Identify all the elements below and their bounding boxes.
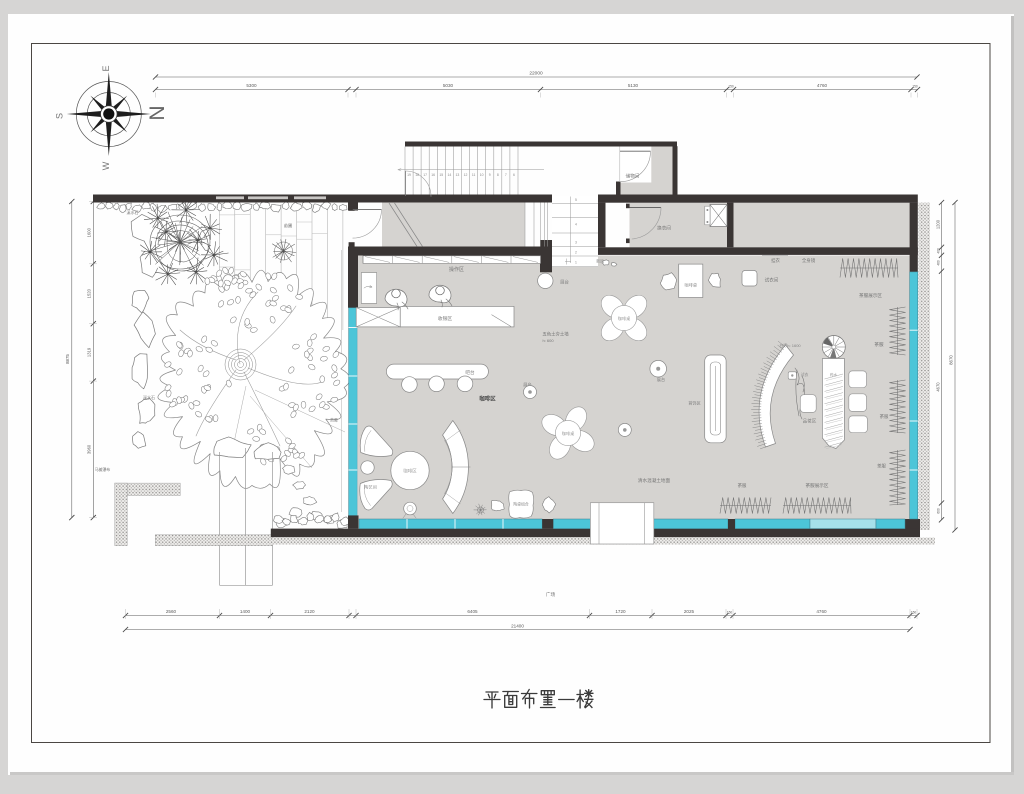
svg-text:22000: 22000 bbox=[529, 71, 543, 77]
svg-text:咖啡桌: 咖啡桌 bbox=[685, 281, 698, 288]
svg-text:h: 600: h: 600 bbox=[542, 338, 554, 343]
svg-text:操作区: 操作区 bbox=[449, 266, 464, 273]
svg-text:咖啡区: 咖啡区 bbox=[479, 395, 496, 403]
svg-text:400: 400 bbox=[936, 248, 940, 254]
svg-text:陶桌组合: 陶桌组合 bbox=[513, 502, 529, 507]
svg-text:21400: 21400 bbox=[511, 624, 524, 629]
svg-text:W: W bbox=[101, 161, 111, 170]
svg-text:广场: 广场 bbox=[546, 591, 556, 598]
svg-text:茶服展示区: 茶服展示区 bbox=[859, 292, 882, 299]
svg-text:150: 150 bbox=[911, 611, 917, 615]
svg-text:1720: 1720 bbox=[615, 609, 626, 614]
svg-text:12: 12 bbox=[464, 173, 468, 177]
svg-text:9: 9 bbox=[489, 173, 491, 177]
svg-text:2: 2 bbox=[575, 251, 577, 255]
svg-text:新风: 新风 bbox=[596, 259, 604, 264]
svg-text:13: 13 bbox=[456, 173, 460, 177]
svg-text:咖啡区: 咖啡区 bbox=[403, 468, 417, 475]
svg-text:5: 5 bbox=[575, 198, 577, 202]
svg-text:茶服: 茶服 bbox=[738, 482, 747, 489]
svg-text:首饰区: 首饰区 bbox=[688, 400, 701, 407]
svg-text:换衣间: 换衣间 bbox=[657, 225, 671, 232]
svg-text:1600: 1600 bbox=[87, 227, 92, 237]
svg-text:7: 7 bbox=[505, 173, 507, 177]
svg-text:4760: 4760 bbox=[817, 83, 828, 88]
svg-text:咖啡桌: 咖啡桌 bbox=[562, 430, 575, 437]
svg-text:3: 3 bbox=[575, 241, 577, 245]
svg-text:药水: 药水 bbox=[830, 372, 838, 377]
svg-text:8: 8 bbox=[497, 173, 499, 177]
svg-text:1200: 1200 bbox=[935, 219, 940, 229]
svg-text:储物间: 储物间 bbox=[626, 173, 640, 180]
svg-text:全身镜: 全身镜 bbox=[802, 257, 816, 264]
svg-text:E: E bbox=[101, 65, 111, 71]
svg-text:收银区: 收银区 bbox=[438, 315, 453, 322]
svg-text:展台: 展台 bbox=[560, 279, 569, 286]
svg-text:150: 150 bbox=[728, 85, 734, 89]
svg-text:N: N bbox=[146, 105, 169, 120]
svg-text:五色土夯土墙: 五色土夯土墙 bbox=[542, 331, 569, 338]
svg-text:19: 19 bbox=[407, 173, 411, 177]
svg-text:6: 6 bbox=[513, 173, 515, 177]
svg-text:茶服: 茶服 bbox=[877, 463, 886, 470]
svg-text:15: 15 bbox=[439, 173, 443, 177]
svg-text:14: 14 bbox=[448, 173, 452, 177]
svg-text:溪水石: 溪水石 bbox=[127, 209, 139, 215]
svg-text:苔藓: 苔藓 bbox=[330, 417, 338, 423]
svg-text:8875: 8875 bbox=[65, 354, 70, 364]
svg-text:溪水石: 溪水石 bbox=[143, 394, 155, 400]
svg-text:10: 10 bbox=[480, 173, 484, 177]
svg-text:1520: 1520 bbox=[87, 288, 92, 298]
svg-text:品茗区: 品茗区 bbox=[803, 418, 817, 425]
svg-text:17: 17 bbox=[423, 173, 427, 177]
svg-text:16: 16 bbox=[431, 173, 435, 177]
svg-text:茶服: 茶服 bbox=[880, 413, 889, 420]
svg-text:4: 4 bbox=[575, 223, 577, 227]
svg-text:茶服: 茶服 bbox=[874, 341, 884, 348]
svg-text:2560: 2560 bbox=[166, 609, 177, 614]
svg-text:挂衣: 挂衣 bbox=[771, 257, 780, 264]
svg-text:茶服展示区: 茶服展示区 bbox=[806, 482, 829, 489]
svg-text:4760: 4760 bbox=[816, 609, 827, 614]
svg-text:咖啡桌: 咖啡桌 bbox=[618, 315, 631, 322]
svg-text:清水混凝土地面: 清水混凝土地面 bbox=[638, 477, 671, 484]
svg-text:5130: 5130 bbox=[628, 83, 639, 88]
svg-text:150: 150 bbox=[912, 85, 918, 89]
svg-text:试衣间: 试衣间 bbox=[765, 277, 779, 284]
svg-text:600: 600 bbox=[936, 508, 940, 514]
svg-text:460: 460 bbox=[936, 260, 940, 266]
svg-text:吧台: 吧台 bbox=[465, 369, 475, 376]
svg-text:马槭瀑布: 马槭瀑布 bbox=[95, 467, 111, 472]
svg-text:展台: 展台 bbox=[657, 376, 665, 383]
svg-text:陶艺间: 陶艺间 bbox=[364, 484, 377, 491]
svg-text:2120: 2120 bbox=[304, 609, 315, 614]
svg-text:11: 11 bbox=[472, 173, 476, 177]
svg-text:5300: 5300 bbox=[246, 83, 257, 88]
svg-text:1319: 1319 bbox=[87, 347, 92, 357]
svg-text:2025: 2025 bbox=[684, 609, 695, 614]
svg-text:试衣: 试衣 bbox=[801, 372, 809, 377]
svg-text:1400: 1400 bbox=[240, 609, 251, 614]
svg-text:8670: 8670 bbox=[949, 355, 954, 365]
svg-text:3960: 3960 bbox=[87, 444, 92, 454]
svg-text:4670: 4670 bbox=[935, 382, 940, 392]
svg-text:1: 1 bbox=[575, 261, 577, 265]
svg-text:150: 150 bbox=[727, 611, 733, 615]
svg-text:5030: 5030 bbox=[443, 83, 454, 88]
svg-text:S: S bbox=[55, 113, 65, 119]
svg-text:6405: 6405 bbox=[467, 609, 478, 614]
